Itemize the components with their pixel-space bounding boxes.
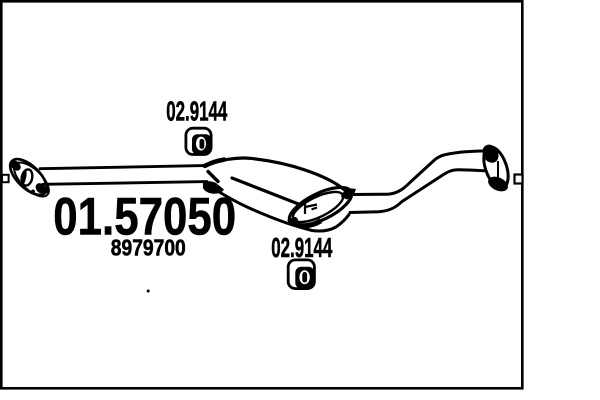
- svg-text:02.9144: 02.9144: [166, 95, 227, 126]
- svg-text:8979700: 8979700: [111, 235, 186, 261]
- svg-text:02.9144: 02.9144: [271, 232, 332, 263]
